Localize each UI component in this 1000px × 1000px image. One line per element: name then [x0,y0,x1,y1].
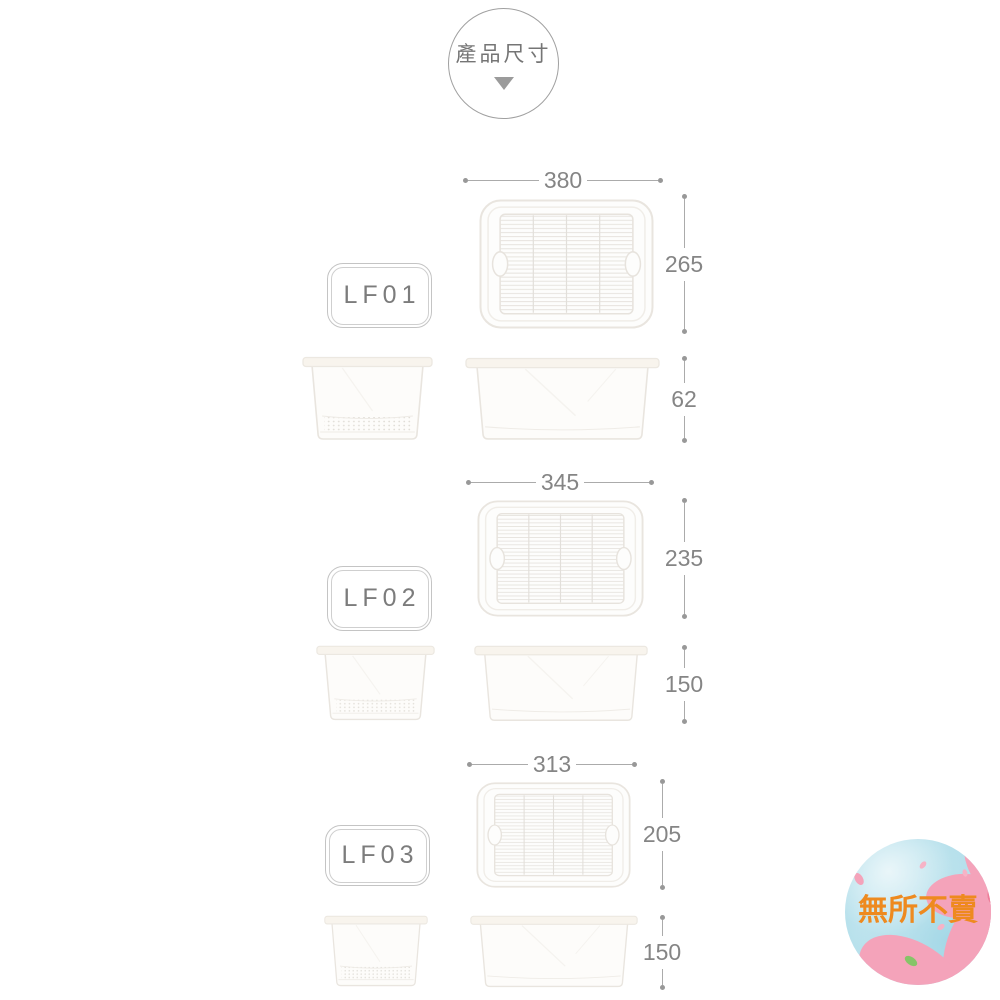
dimension-line [684,503,685,542]
dimension-value-width: 345 [536,471,584,494]
dimension-width-lf03: 313 [467,753,637,776]
model-name: LF02 [339,584,421,613]
dimension-endpoint-dot [658,178,663,183]
dimension-width-lf02: 345 [466,471,654,494]
large-container-illustration-lf01 [465,357,660,443]
dimension-line [684,701,685,719]
model-label-lf01: LF01 [327,263,432,328]
dimension-endpoint-dot [682,614,687,619]
dimension-line [684,361,685,383]
dimension-value-width: 380 [539,169,587,192]
dimension-endpoint-dot [632,762,637,767]
watermark-text: 無所不賣 [845,896,991,926]
dimension-endpoint-dot [682,329,687,334]
dimension-depth-lf03: 205 [638,779,686,890]
dimension-line [471,482,536,483]
dimension-line [684,281,685,330]
model-label-lf02: LF02 [327,566,432,631]
small-container-illustration-lf03 [324,915,428,989]
dimension-line [472,764,528,765]
dimension-height-lf01: 62 [660,356,708,443]
dimension-depth-lf02: 235 [660,498,708,619]
dimension-line [584,482,649,483]
dimension-line [587,180,658,181]
dimension-line [662,920,663,936]
dimension-value-width: 313 [528,753,576,776]
page-title: 產品尺寸 [456,38,552,68]
dimension-endpoint-dot [660,885,665,890]
triangle-down-icon [494,77,514,90]
model-label-lf03: LF03 [325,825,430,886]
dimension-line [576,764,632,765]
dimension-line [684,650,685,668]
large-container-illustration-lf02 [474,645,648,724]
dimension-endpoint-dot [682,719,687,724]
top-view-illustration-lf03 [476,782,631,888]
dimension-line [684,199,685,248]
large-container-illustration-lf03 [470,915,638,990]
dimension-value-depth: 235 [665,542,703,575]
top-view-illustration-lf01 [479,199,654,329]
dimension-height-lf02: 150 [660,645,708,724]
dimension-value-depth: 205 [643,818,681,851]
dimension-value-height: 150 [643,936,681,969]
dimension-value-height: 150 [665,668,703,701]
small-container-illustration-lf01 [302,356,433,443]
dimension-depth-lf01: 265 [660,194,708,334]
petal-icon [918,860,927,870]
product-dimension-diagram: 產品尺寸 380 265 LF01 62 345 [0,0,1000,1000]
dimension-value-height: 62 [671,383,697,416]
dimension-value-depth: 265 [665,248,703,281]
dimension-line [468,180,539,181]
small-container-illustration-lf02 [316,645,435,723]
dimension-line [662,851,663,885]
dimension-line [662,784,663,818]
top-view-illustration-lf02 [477,500,644,617]
dimension-endpoint-dot [660,985,665,990]
dimension-height-lf03: 150 [638,915,686,990]
dimension-endpoint-dot [649,480,654,485]
header-badge: 產品尺寸 [448,8,559,119]
dimension-line [684,575,685,614]
dimension-line [684,416,685,438]
model-name: LF01 [339,281,421,310]
dimension-line [662,969,663,985]
model-name: LF03 [337,841,419,870]
dimension-endpoint-dot [682,438,687,443]
petal-icon [852,871,865,886]
dimension-width-lf01: 380 [463,169,663,192]
watermark-seal: 無所不賣 [845,839,991,985]
